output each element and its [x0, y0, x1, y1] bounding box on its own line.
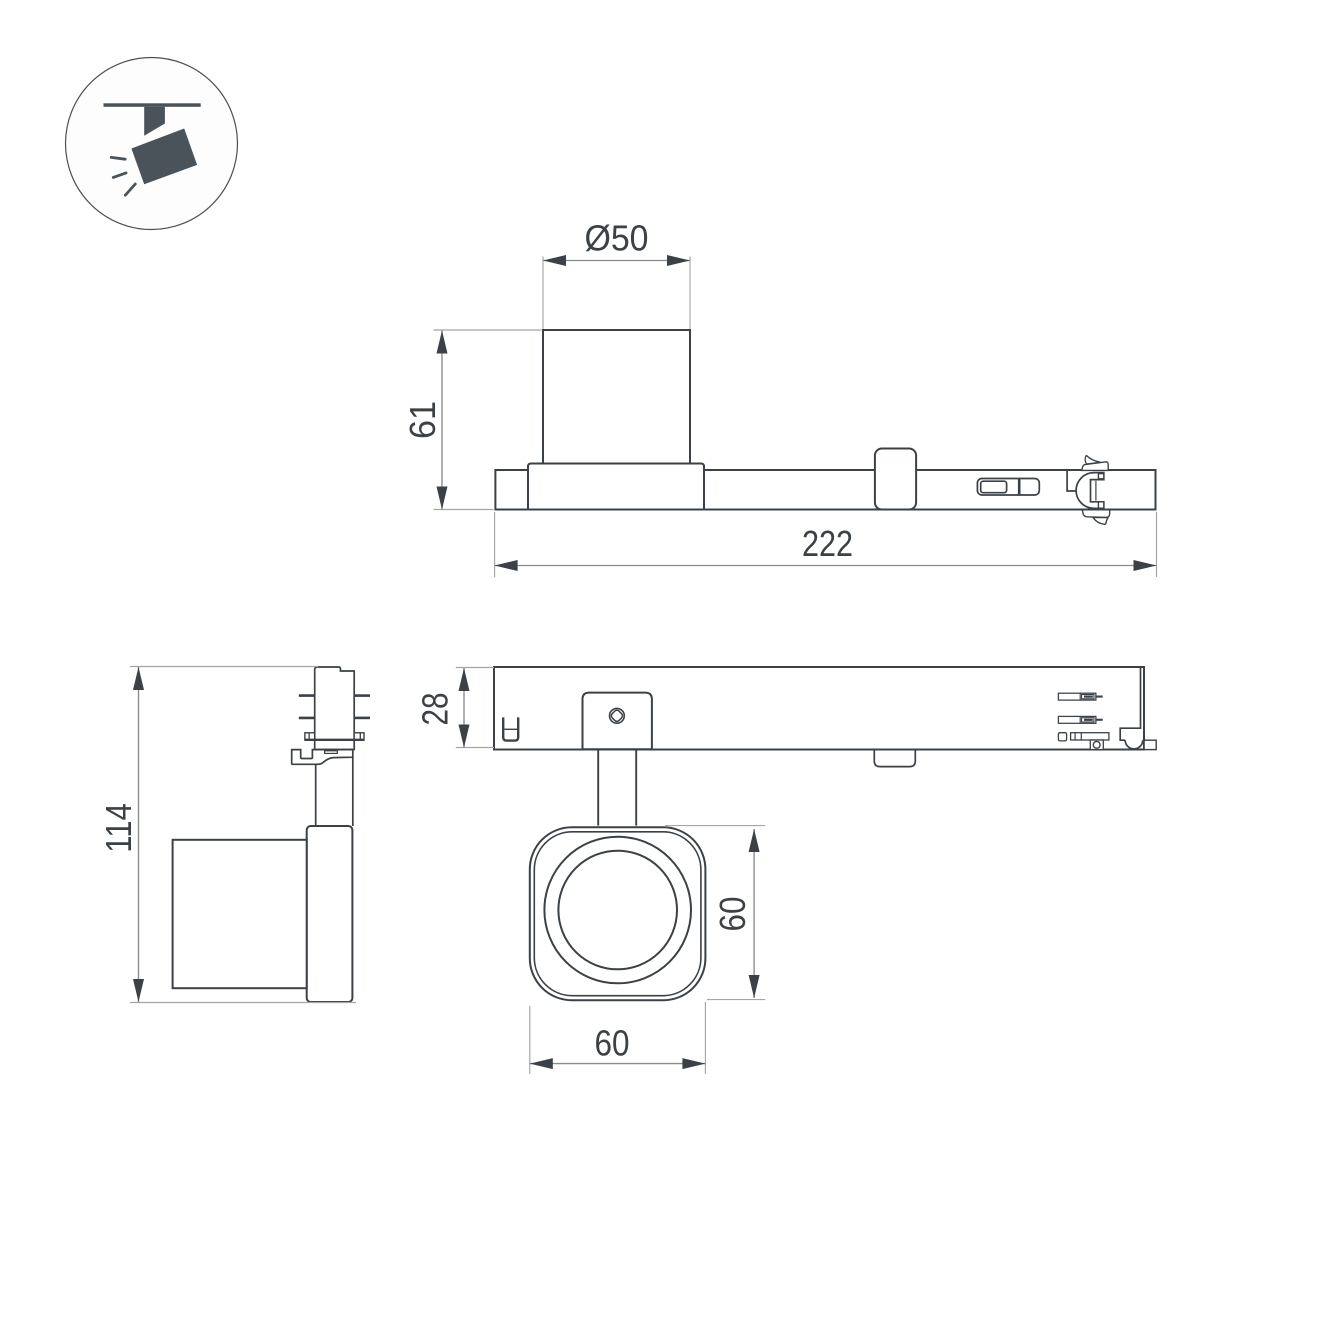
svg-text:60: 60 — [712, 897, 753, 932]
svg-text:Ø50: Ø50 — [585, 218, 649, 259]
svg-text:60: 60 — [595, 1023, 630, 1064]
svg-text:222: 222 — [802, 523, 853, 564]
svg-text:114: 114 — [98, 803, 139, 853]
svg-text:61: 61 — [402, 401, 443, 439]
svg-text:28: 28 — [415, 693, 456, 726]
